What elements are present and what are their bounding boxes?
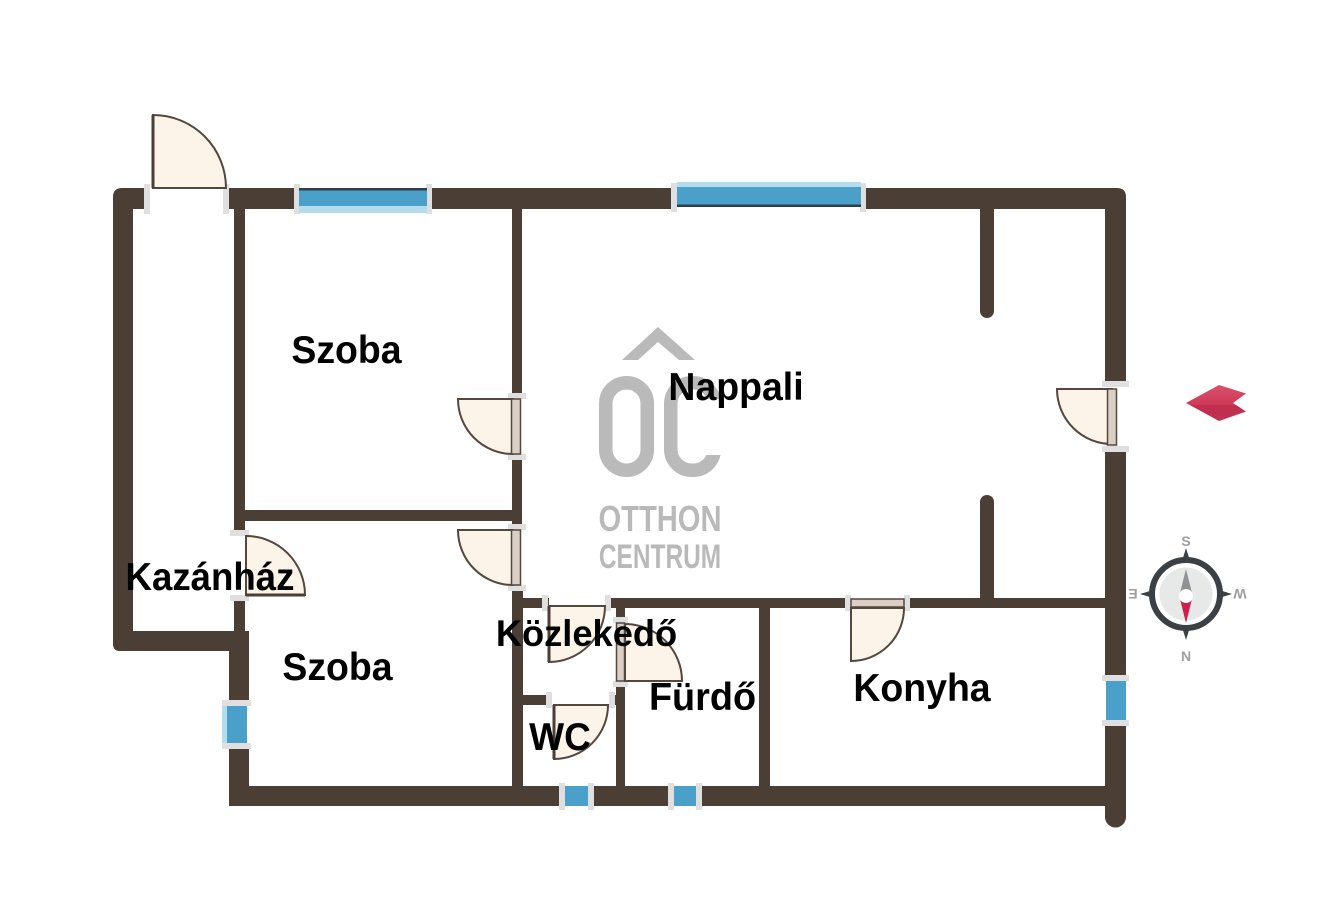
svg-text:OTTHON: OTTHON bbox=[598, 498, 721, 539]
svg-text:CENTRUM: CENTRUM bbox=[599, 538, 721, 576]
svg-text:Szoba: Szoba bbox=[291, 328, 402, 372]
svg-text:Nappali: Nappali bbox=[668, 365, 803, 409]
svg-text:S: S bbox=[1181, 533, 1190, 549]
svg-text:N: N bbox=[1181, 648, 1191, 664]
svg-text:Közlekedő: Közlekedő bbox=[496, 613, 677, 654]
svg-text:W: W bbox=[1233, 586, 1247, 602]
svg-text:Konyha: Konyha bbox=[853, 666, 991, 710]
svg-text:Fürdő: Fürdő bbox=[649, 675, 756, 719]
svg-text:WC: WC bbox=[529, 716, 591, 759]
svg-text:E: E bbox=[1128, 586, 1137, 602]
svg-text:Szoba: Szoba bbox=[282, 645, 393, 689]
svg-text:Kazánház: Kazánház bbox=[125, 556, 294, 599]
